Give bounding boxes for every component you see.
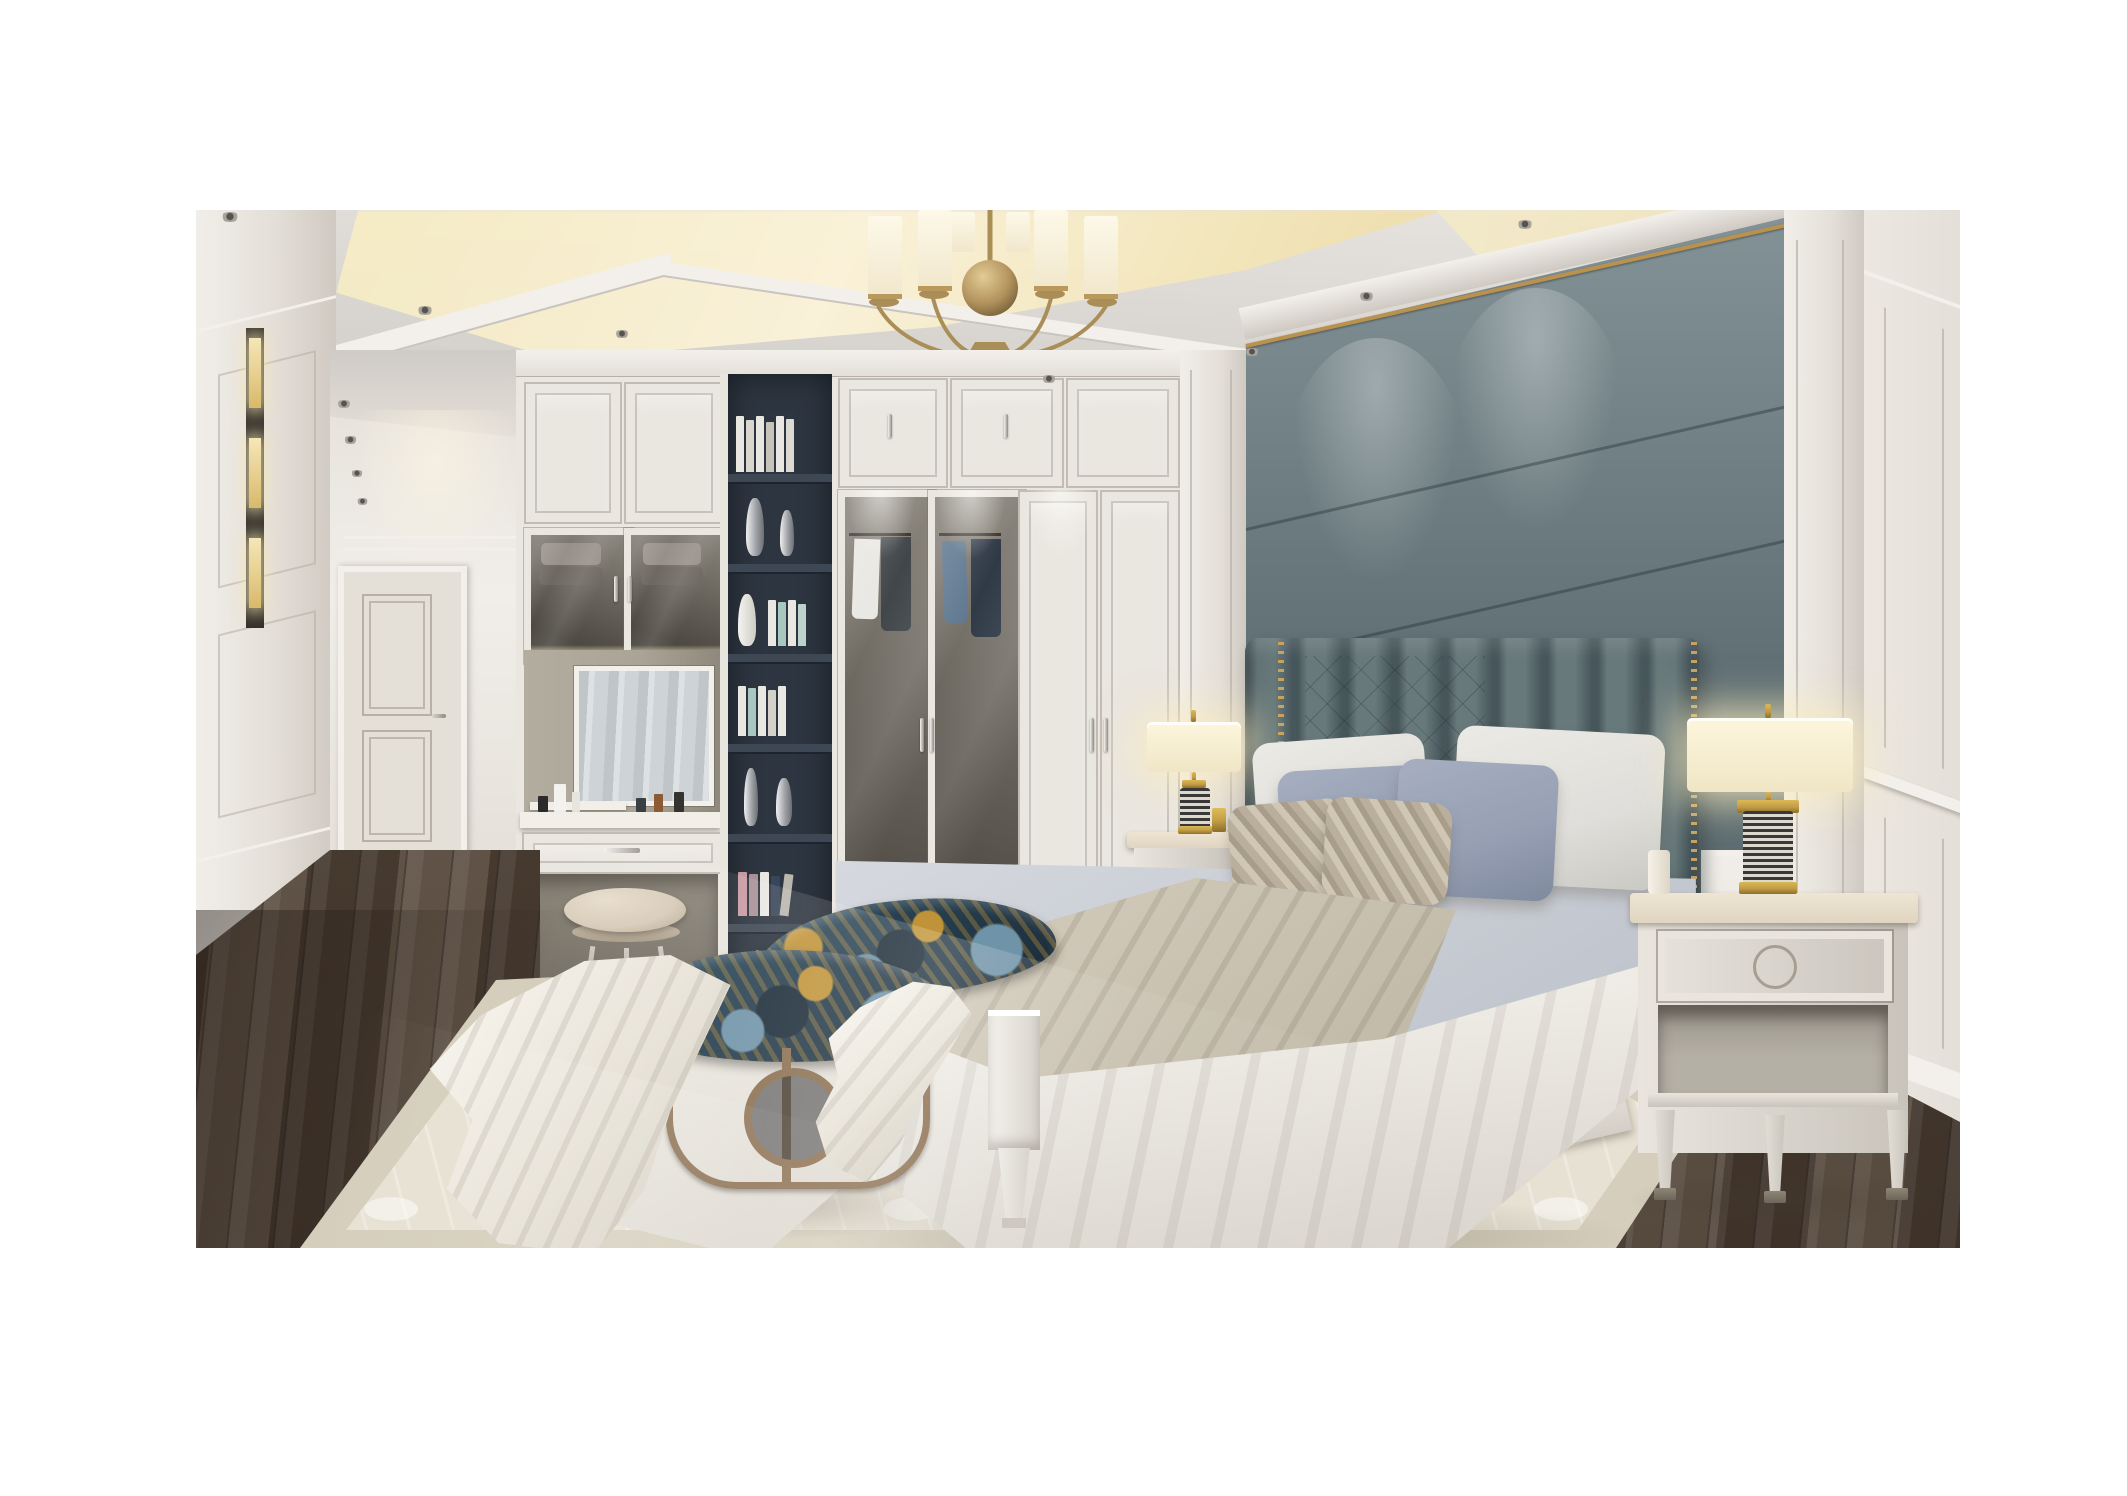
downlight-scallop: [936, 490, 1006, 560]
lamp-finial: [1191, 710, 1196, 722]
lamp-base: [1739, 882, 1797, 894]
wardrobe-upper-door: [1066, 378, 1180, 488]
wardrobe-handle: [1104, 718, 1108, 752]
silver-vase: [744, 768, 758, 826]
perfume-bottle: [636, 798, 646, 812]
book: [788, 600, 796, 646]
wardrobe-crown: [516, 350, 1180, 377]
amber-bottle: [654, 794, 663, 812]
book: [748, 688, 756, 736]
hallway: [330, 350, 542, 890]
wardrobe-upper-door: [624, 382, 724, 524]
footboard-post: [988, 1010, 1040, 1150]
recessed-downlight: [1516, 220, 1534, 229]
recessed-downlight: [1041, 375, 1057, 383]
lamp-base: [1178, 826, 1212, 834]
door-head-molding: [344, 548, 528, 551]
gold-ornament: [1212, 808, 1226, 832]
white-candle: [1648, 850, 1670, 894]
pump-bottle: [554, 784, 566, 812]
book: [758, 686, 766, 736]
drawer-handle: [604, 848, 640, 853]
niche-light: [249, 338, 261, 408]
lamp-finial: [1765, 704, 1771, 718]
niche-light: [249, 538, 261, 608]
wall-spotlight-glow: [1286, 338, 1466, 598]
recessed-downlight: [220, 212, 240, 222]
recessed-downlight: [356, 498, 369, 505]
vanity-mirror: [574, 666, 714, 806]
chandelier-shade-rear: [951, 212, 975, 252]
book: [736, 416, 744, 472]
left-lamp-body: [1180, 788, 1210, 830]
recessed-downlight: [614, 330, 630, 338]
book: [778, 686, 786, 736]
wall-spotlight-glow: [1446, 288, 1626, 548]
book: [760, 872, 769, 916]
wardrobe-handle: [1004, 414, 1008, 438]
recessed-downlight: [416, 306, 434, 315]
leg-metal-cap: [1886, 1188, 1908, 1200]
silver-vase: [780, 510, 794, 556]
recessed-downlight: [1244, 348, 1260, 356]
white-vase: [738, 594, 756, 646]
silver-vase: [746, 498, 764, 556]
recessed-downlight: [1358, 292, 1375, 301]
wardrobe-handle: [930, 718, 934, 752]
left-wall-panel: [218, 350, 316, 588]
ring-pull: [1753, 945, 1797, 989]
door-panel-lower: [362, 730, 432, 842]
recessed-downlight: [336, 400, 352, 408]
chandelier-stem: [988, 210, 993, 268]
book: [771, 876, 780, 916]
cabinet-handle: [628, 576, 632, 602]
book: [798, 604, 806, 646]
book: [778, 602, 786, 646]
book: [738, 686, 746, 736]
wardrobe-handle: [1090, 718, 1094, 752]
bedroom-render-photo: [196, 210, 1960, 1248]
vanity-counter: [520, 812, 720, 828]
book: [779, 874, 793, 917]
door-head-molding: [344, 536, 528, 539]
left-wall-panel: [218, 610, 316, 818]
lamp-cap: [1182, 780, 1206, 788]
book: [756, 416, 764, 472]
right-lamp-body: [1743, 811, 1793, 893]
book: [746, 420, 754, 472]
right-nightstand-top: [1630, 893, 1918, 923]
door-panel-upper: [362, 594, 432, 716]
recessed-downlight: [343, 436, 358, 444]
vanity-stool: [564, 888, 686, 932]
niche-light: [249, 438, 261, 508]
door-handle: [432, 714, 446, 718]
wardrobe-handle: [920, 718, 924, 752]
cosmetic-tube: [572, 792, 580, 812]
wardrobe-handle: [888, 414, 892, 438]
wardrobe-upper-door: [838, 378, 948, 488]
leg-metal-cap: [1654, 1188, 1676, 1200]
book: [768, 690, 776, 736]
left-wall-chair-rail: [196, 825, 336, 863]
book: [768, 600, 776, 646]
chandelier-sphere: [962, 260, 1018, 316]
footboard-foot: [1002, 1218, 1026, 1228]
silver-vase: [776, 778, 792, 826]
book: [776, 416, 784, 472]
page: [0, 0, 2127, 1496]
right-lamp-shade: [1687, 718, 1853, 792]
left-lamp-shade: [1147, 722, 1241, 772]
downlight-scallop: [846, 490, 916, 560]
vanity-drawer: [522, 832, 724, 874]
shelf-stile: [720, 374, 728, 1016]
left-nightstand-top: [1127, 832, 1243, 848]
book: [738, 872, 747, 916]
wardrobe-upper-door: [524, 382, 622, 524]
left-wall-cornice: [196, 295, 336, 333]
nightstand-shelf: [1658, 1005, 1888, 1093]
hallway-wall-glow: [350, 410, 520, 580]
book: [749, 874, 758, 916]
hallway-door: [338, 566, 467, 882]
nightstand-apron: [1648, 1093, 1898, 1107]
chair-rail: [1864, 766, 1960, 822]
figurine: [674, 792, 684, 812]
book: [766, 422, 774, 472]
book: [786, 419, 794, 472]
downlight-scallop: [1026, 490, 1096, 560]
recessed-downlight: [350, 470, 364, 477]
leg-metal-cap: [1764, 1191, 1786, 1203]
brush-cup: [538, 796, 548, 812]
display-cabinet-door: [624, 528, 734, 664]
display-niche: [246, 328, 264, 628]
cabinet-handle: [614, 576, 618, 602]
pillow-striped-tan: [1321, 796, 1454, 907]
